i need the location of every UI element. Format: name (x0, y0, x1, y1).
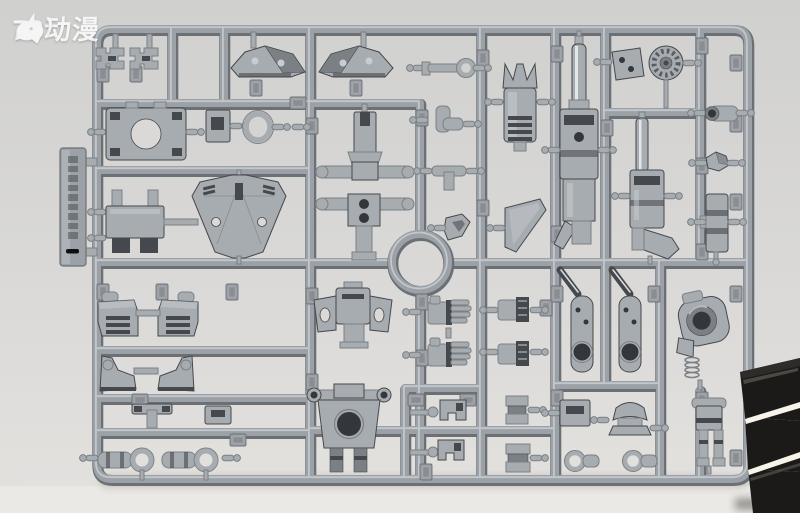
core-block-part (88, 102, 205, 160)
floor-surface (0, 486, 800, 513)
wing-shield-part (192, 170, 286, 264)
oval-ring-part (243, 111, 311, 144)
fist-hand-parts (480, 297, 549, 366)
small-ring-parts (565, 451, 658, 472)
foot-armor-parts (100, 356, 194, 391)
waist-assembly-part (316, 104, 414, 260)
shoulder-vent-parts (98, 292, 198, 336)
clamp-part-pair (96, 34, 158, 69)
runner-info-tag (60, 148, 97, 266)
chest-part (88, 190, 198, 253)
open-hand-parts (403, 296, 471, 367)
embossed-mold-text (68, 156, 78, 239)
embossed-dash-mark (66, 249, 79, 254)
torso-part (314, 282, 392, 348)
rifle-stock-part (487, 199, 546, 252)
sprue-photo (0, 0, 800, 513)
funnel-booster-part (485, 64, 556, 151)
t-bracket-part (132, 404, 172, 428)
cowl-panel-right (319, 32, 393, 77)
cowl-panel-left (231, 32, 305, 77)
photo-scene: 78动漫 (0, 0, 800, 513)
launcher-rifle-part (612, 112, 683, 264)
runner-center-ring (391, 233, 449, 292)
small-box-part (205, 406, 231, 424)
box-small-part (542, 400, 590, 426)
head-camera-part (665, 286, 734, 390)
